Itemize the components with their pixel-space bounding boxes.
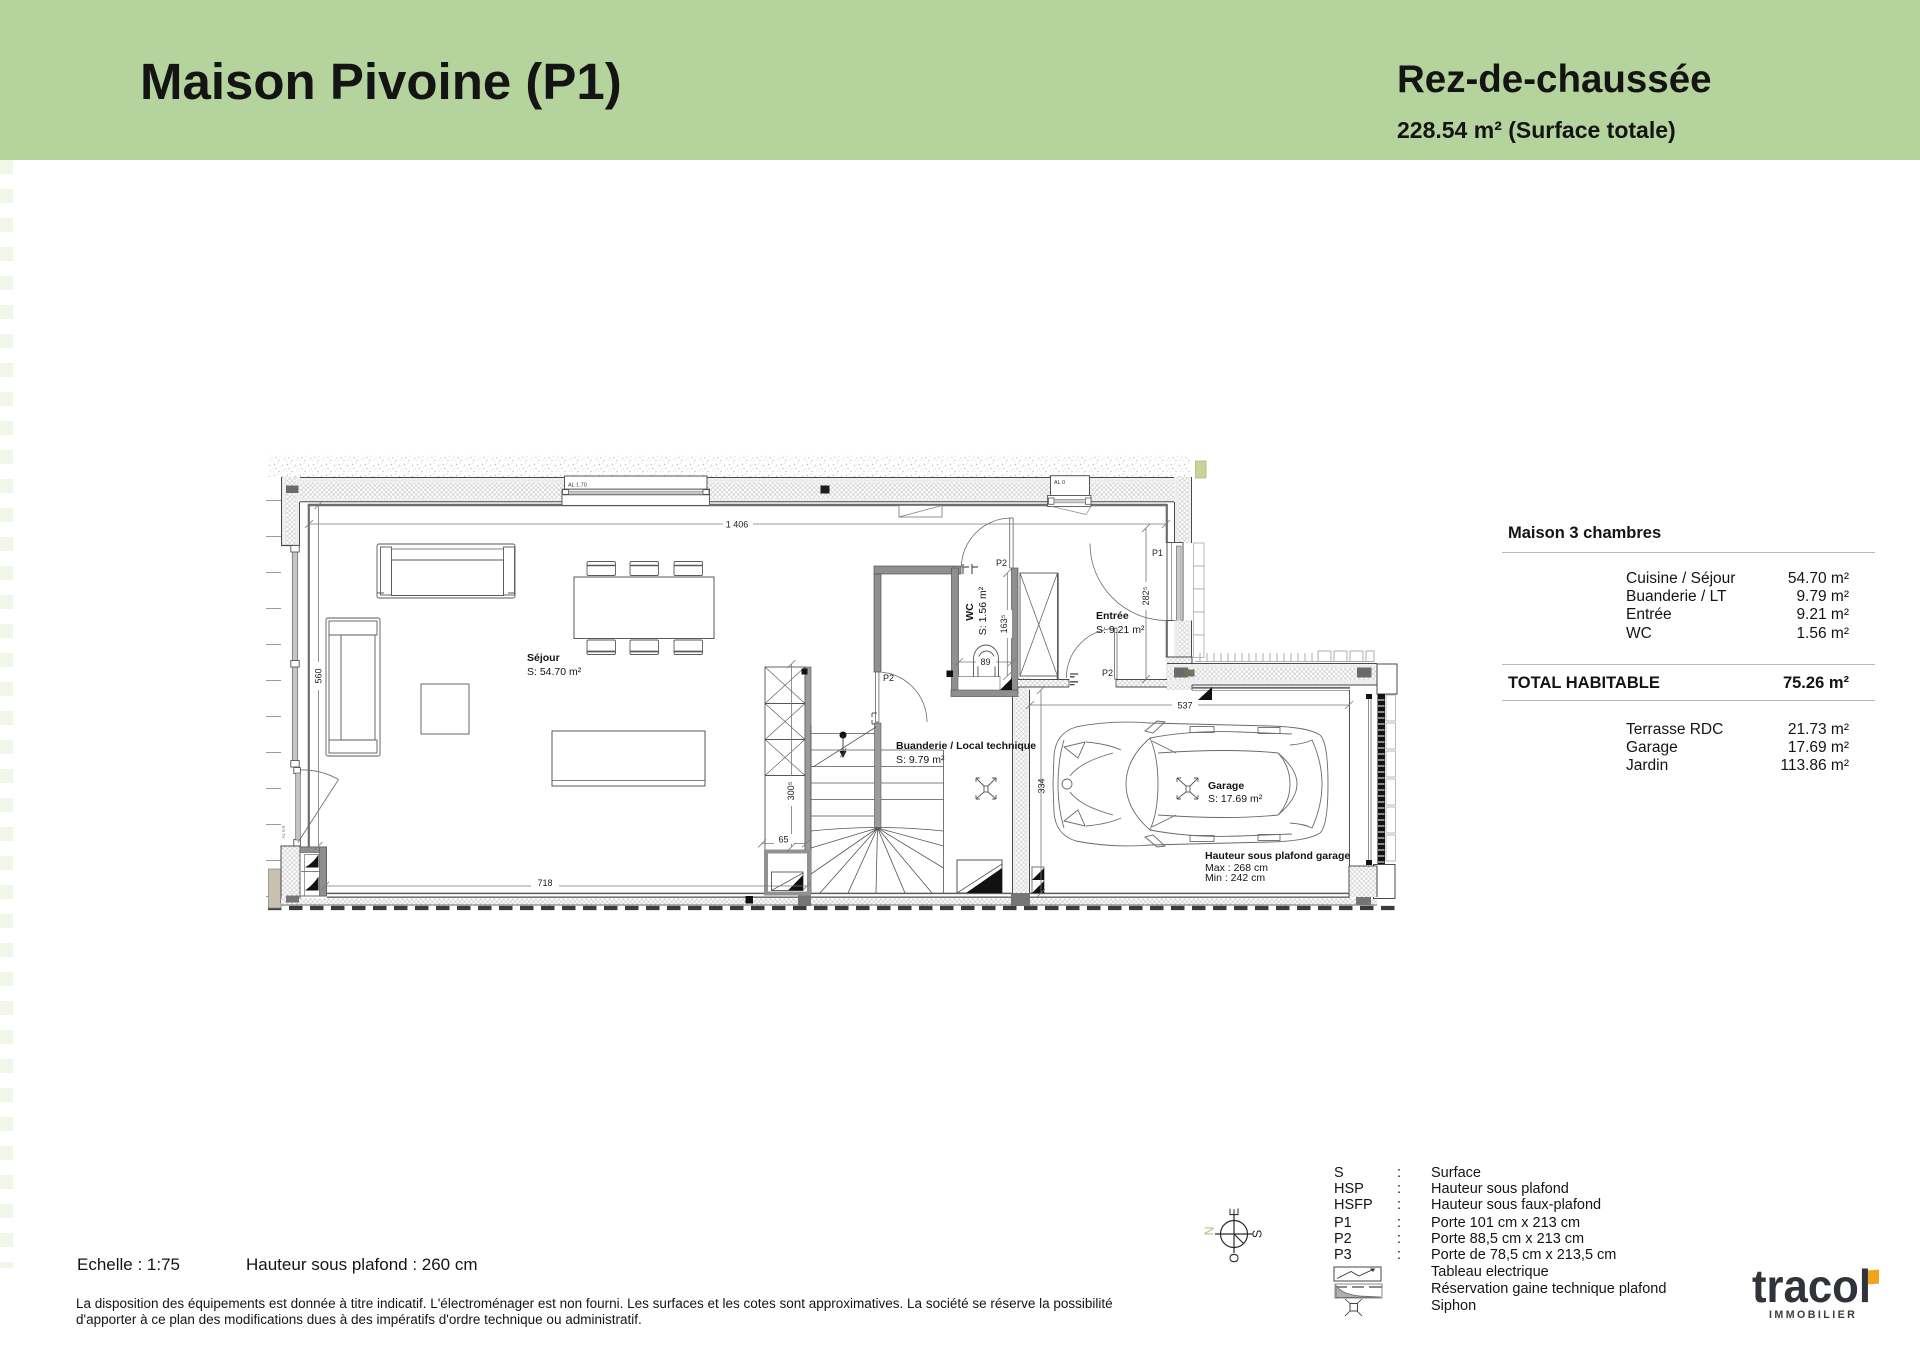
svg-text:S: S	[1251, 1230, 1265, 1238]
svg-text:N: N	[1203, 1226, 1217, 1235]
svg-text:E: E	[1228, 1208, 1242, 1216]
svg-text:O: O	[1228, 1253, 1242, 1263]
